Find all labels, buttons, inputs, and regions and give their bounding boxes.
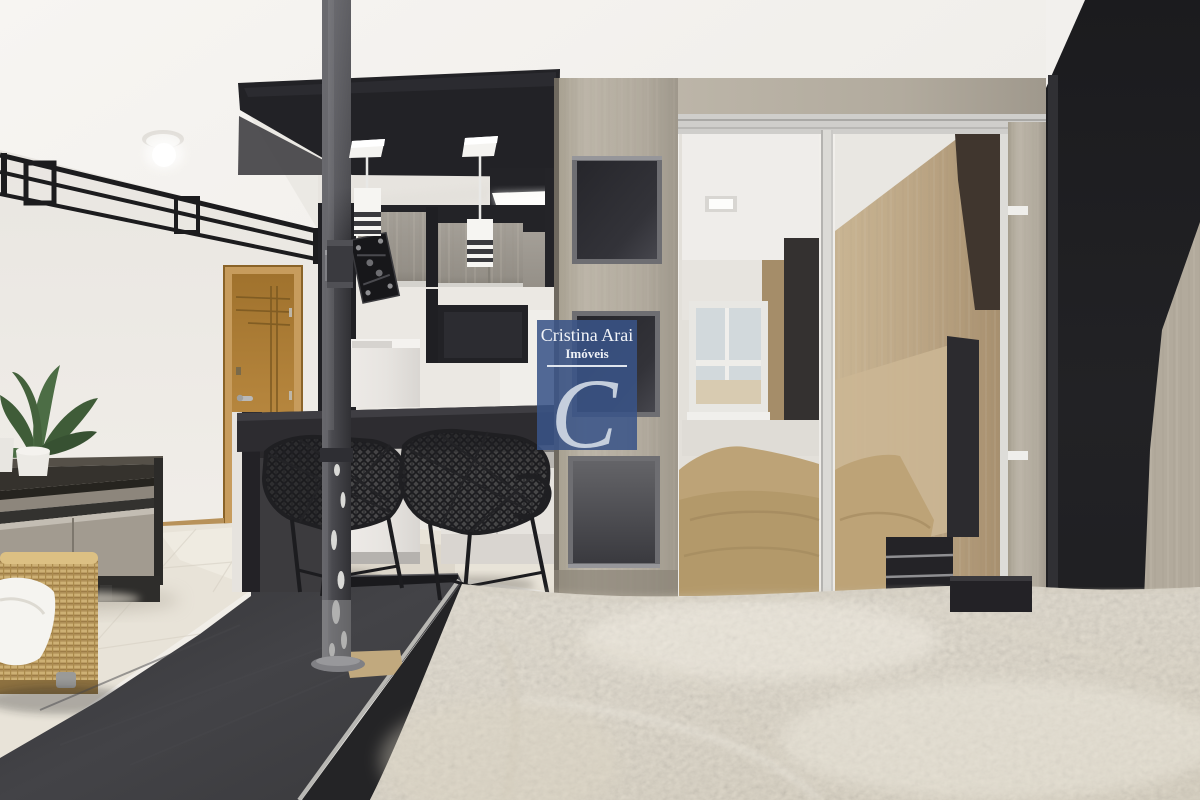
svg-text:Cristina Arai: Cristina Arai [541,325,634,345]
svg-text:C: C [551,358,619,469]
